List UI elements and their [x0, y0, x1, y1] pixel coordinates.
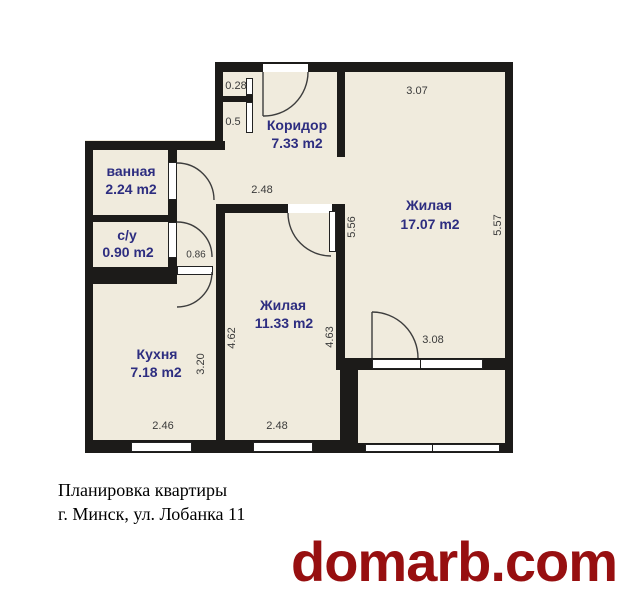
room-label-zhilaya1: Жилая: [260, 297, 306, 313]
room1-door-arc: [288, 213, 331, 256]
dim-room2-right: 5.57: [492, 214, 504, 235]
dim-closet-bottom: 0.5: [225, 116, 240, 128]
room-label-koridor: Коридор: [267, 117, 327, 133]
room-label-vannaya: ванная: [106, 163, 155, 179]
dim-room2-left: 5.56: [346, 216, 358, 237]
dim-kitchen-bottom: 2.46: [152, 420, 173, 432]
dim-kitchen-right: 3.20: [195, 353, 207, 374]
dim-passage: 0.86: [186, 250, 205, 261]
caption-line1: Планировка квартиры: [58, 478, 245, 502]
dim-room1-right: 4.63: [324, 326, 336, 347]
dim-closet-top: 0.28: [225, 80, 246, 92]
bath-door-arc: [177, 163, 214, 200]
watermark-text: domarb.com: [291, 534, 617, 590]
room-area-vannaya: 2.24 m2: [105, 181, 156, 197]
room-label-su: с/у: [117, 227, 136, 243]
balcony-door-arc: [372, 312, 418, 358]
entrance-door-arc: [263, 72, 308, 116]
dim-room2-top: 3.07: [406, 85, 427, 97]
room-area-zhilaya2: 17.07 m2: [400, 216, 459, 232]
room-area-kuhnya: 7.18 m2: [130, 364, 181, 380]
room-label-zhilaya2: Жилая: [406, 197, 452, 213]
kitchen-door-arc: [177, 272, 212, 307]
caption-line2: г. Минск, ул. Лобанка 11: [58, 502, 245, 526]
dim-room1-top: 2.48: [251, 184, 272, 196]
caption: Планировка квартиры г. Минск, ул. Лобанк…: [58, 478, 245, 526]
dim-balcony-door: 3.08: [422, 334, 443, 346]
room-area-koridor: 7.33 m2: [271, 135, 322, 151]
dim-room1-bottom: 2.48: [266, 420, 287, 432]
room-label-kuhnya: Кухня: [137, 346, 178, 362]
room-area-zhilaya1: 11.33 m2: [255, 315, 313, 331]
dim-room1-left: 4.62: [226, 327, 238, 348]
room-area-su: 0.90 m2: [102, 244, 153, 260]
